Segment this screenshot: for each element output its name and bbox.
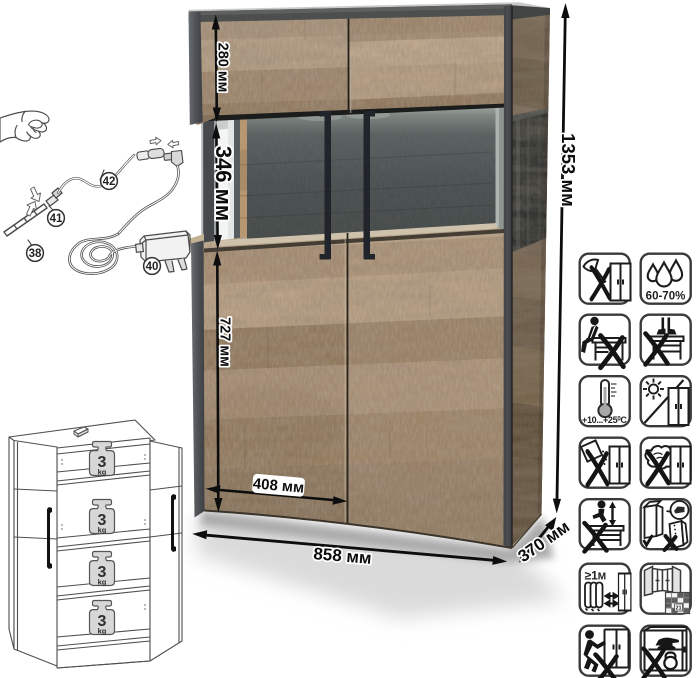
svg-text:21: 21 [675, 606, 681, 612]
svg-text:41: 41 [50, 213, 63, 225]
svg-text:346 мм: 346 мм [211, 146, 236, 221]
svg-text:42: 42 [103, 176, 116, 188]
svg-text:+10...+250C: +10...+250C [582, 415, 627, 425]
svg-text:1353 мм: 1353 мм [558, 133, 579, 207]
svg-text:60-70%: 60-70% [646, 291, 686, 303]
svg-text:38: 38 [29, 248, 42, 260]
svg-text:727 мм: 727 мм [217, 317, 233, 367]
svg-text:280 мм: 280 мм [215, 43, 231, 93]
svg-text:≥1M: ≥1M [585, 569, 607, 583]
svg-text:40: 40 [146, 261, 159, 273]
svg-text:kg: kg [98, 468, 107, 477]
